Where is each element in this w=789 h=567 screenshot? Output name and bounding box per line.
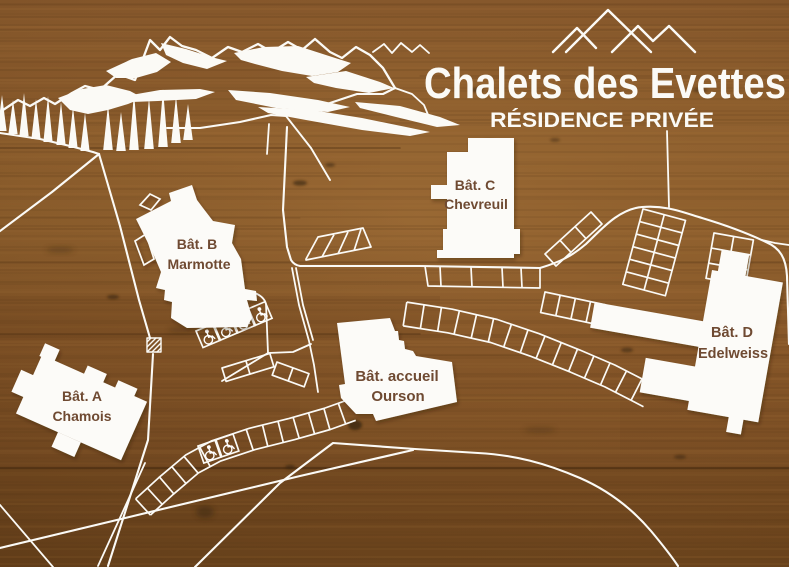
- svg-text:Bât. C: Bât. C: [455, 177, 495, 193]
- svg-text:Chalets des Evettes: Chalets des Evettes: [424, 59, 786, 108]
- svg-text:Edelweiss: Edelweiss: [698, 346, 768, 362]
- svg-text:Bât. A: Bât. A: [62, 388, 102, 404]
- svg-text:Bât. accueil: Bât. accueil: [355, 368, 438, 385]
- svg-text:Chevreuil: Chevreuil: [444, 196, 508, 212]
- svg-text:Bât. D: Bât. D: [711, 325, 753, 341]
- svg-text:Ourson: Ourson: [371, 388, 424, 405]
- svg-text:Bât. B: Bât. B: [177, 236, 217, 252]
- svg-text:RÉSIDENCE PRIVÉE: RÉSIDENCE PRIVÉE: [490, 109, 714, 132]
- svg-text:Marmotte: Marmotte: [167, 256, 230, 272]
- svg-text:Chamois: Chamois: [52, 408, 111, 424]
